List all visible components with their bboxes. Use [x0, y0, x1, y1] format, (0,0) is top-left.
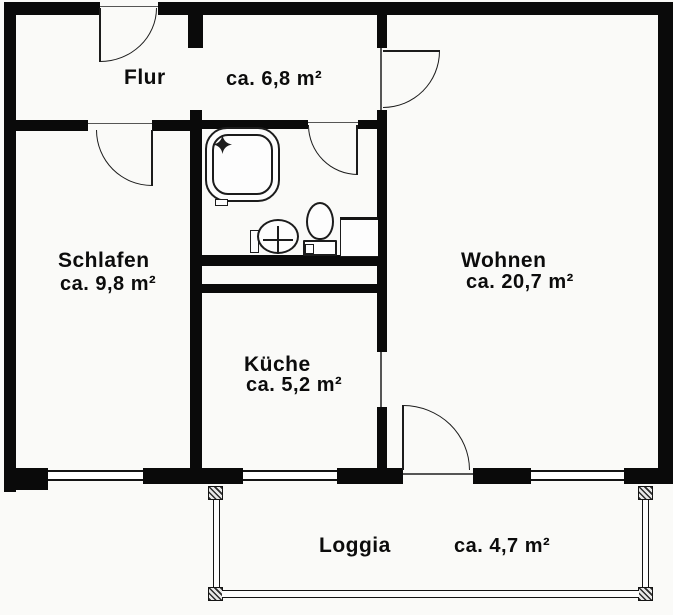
loggia-column-top-right: [638, 486, 653, 500]
wall-bottom-corner-left: [4, 468, 48, 490]
loggia-door-arc: [403, 405, 470, 470]
wall-a-stub-top: [188, 15, 203, 48]
wall-bottom-seg-3: [473, 468, 531, 484]
bath-door-opening-line: [308, 122, 358, 123]
washbasin-tap-horizontal: [263, 239, 293, 241]
room-label-schlafen-area: ca. 9,8 m²: [60, 273, 156, 296]
floor-plan: Flur ca. 6,8 m² Schlafen ca. 9,8 m² Wohn…: [0, 0, 673, 615]
wall-bottom-seg-2: [337, 468, 403, 484]
wall-top-left: [4, 2, 100, 15]
room-label-schlafen-name: Schlafen: [58, 249, 150, 273]
room-label-loggia-area: ca. 4,7 m²: [454, 535, 550, 558]
window-schlafen: [48, 470, 143, 481]
wall-flur-schlafen-left: [16, 120, 88, 131]
window-kueche: [243, 470, 337, 481]
loggia-railing-left: [213, 500, 220, 587]
kueche-opening-line: [380, 352, 382, 407]
loggia-railing-right: [642, 500, 649, 587]
wall-b-stub-top: [377, 15, 387, 48]
room-label-wohnen-area: ca. 20,7 m²: [466, 271, 574, 294]
bath-counter-icon: [340, 217, 378, 257]
wall-bottom-corner-right: [624, 468, 673, 484]
room-label-flur-name: Flur: [124, 66, 166, 90]
toilet-icon: [306, 202, 334, 240]
wall-left: [4, 2, 16, 492]
bath-door-arc: [308, 125, 358, 175]
loggia-door-opening-line: [403, 473, 473, 475]
wall-top-right: [158, 2, 673, 15]
wall-bottom-seg-1: [143, 468, 243, 484]
wall-flur-schlafen-right: [152, 120, 190, 131]
wohnen-door-opening-line: [380, 48, 382, 110]
wall-b-bottom: [377, 407, 387, 468]
loggia-column-top-left: [208, 486, 223, 500]
loggia-column-bottom-right: [638, 587, 653, 601]
entry-door-arc: [100, 8, 157, 62]
loggia-column-bottom-left: [208, 587, 223, 601]
schlafen-door-arc: [96, 130, 152, 186]
room-label-kueche-area: ca. 5,2 m²: [246, 374, 342, 397]
entry-door-opening-line: [100, 6, 158, 7]
loggia-railing-bottom: [222, 590, 639, 598]
toilet-flush-detail: [305, 244, 314, 254]
room-label-loggia-name: Loggia: [319, 534, 391, 558]
room-label-flur-area: ca. 6,8 m²: [226, 68, 322, 91]
sparkle-star-icon: [213, 135, 232, 154]
wohnen-door-arc: [383, 51, 440, 108]
wall-kueche-top-band: [202, 284, 387, 293]
room-label-wohnen-name: Wohnen: [461, 249, 546, 273]
wall-b-mid: [377, 110, 387, 352]
wall-a-vertical: [190, 110, 202, 470]
schlafen-door-opening-line: [88, 123, 152, 124]
shower-drain-tab: [215, 199, 228, 206]
window-wohnen: [531, 470, 624, 481]
wall-bath-top-right: [358, 120, 377, 129]
wall-right: [658, 2, 673, 484]
